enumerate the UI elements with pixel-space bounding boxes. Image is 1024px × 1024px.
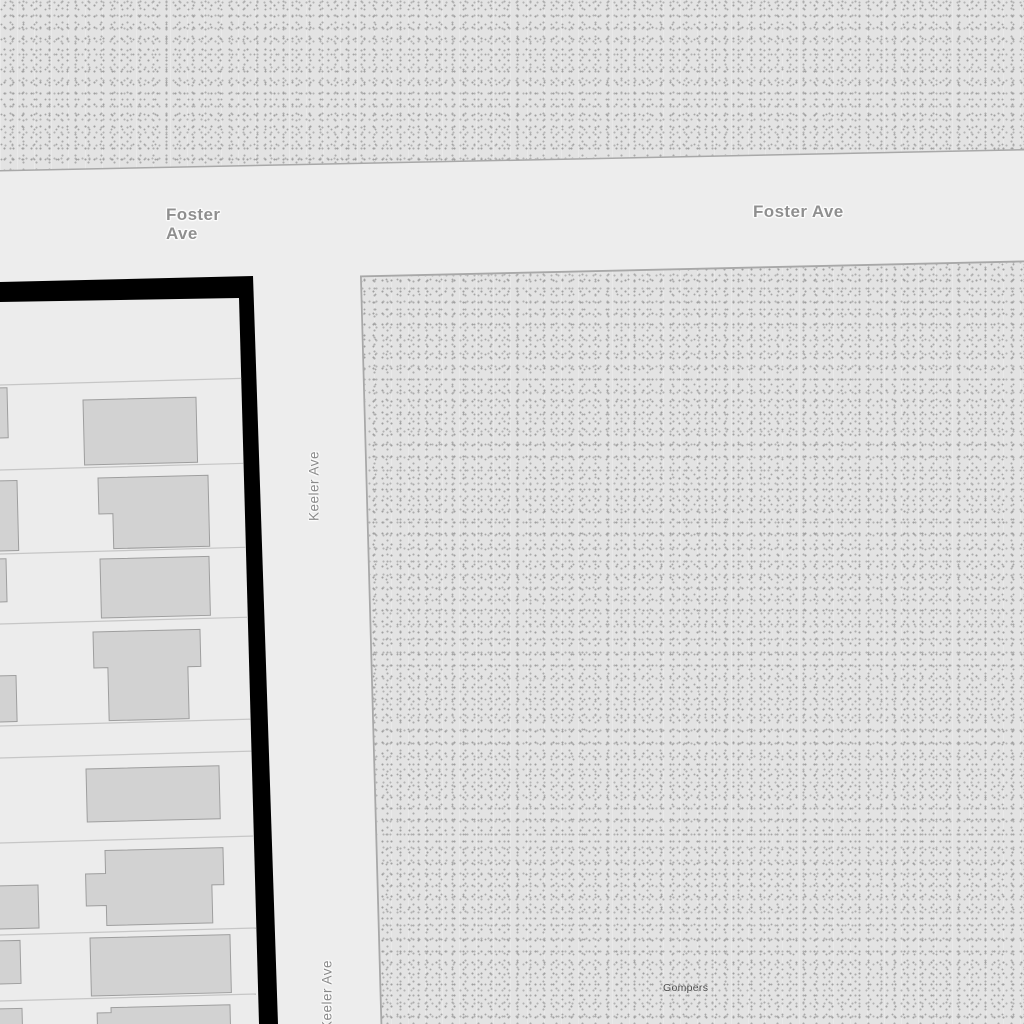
- road-label-keeler-ave-north: Keeler Ave: [307, 451, 322, 521]
- road-label-foster-ave-east: Foster Ave: [753, 202, 844, 221]
- road-label-keeler-ave-south: Keeler Ave: [320, 960, 335, 1024]
- building-footprint-partial: [0, 676, 17, 722]
- building-footprint-partial: [0, 1008, 22, 1024]
- building-footprint-partial: [0, 481, 19, 551]
- building-footprint: [86, 766, 220, 822]
- building-footprint: [100, 556, 210, 618]
- building-footprint: [97, 1005, 230, 1024]
- parcel-block-layer: [0, 0, 1024, 1024]
- building-footprint-partial: [0, 940, 21, 984]
- road-label-foster-ave-west: Foster Ave: [166, 205, 230, 243]
- map-canvas[interactable]: Foster Ave Foster Ave Keeler Ave Keeler …: [0, 0, 1024, 1024]
- building-footprint-partial: [0, 388, 8, 438]
- building-footprint: [93, 629, 202, 721]
- place-label-gompers-park: Gompers: [663, 982, 708, 994]
- building-footprint-partial: [0, 559, 7, 602]
- building-footprint-partial: [0, 885, 39, 929]
- building-footprint: [98, 475, 210, 549]
- building-footprint: [90, 935, 231, 996]
- building-footprint: [83, 397, 198, 465]
